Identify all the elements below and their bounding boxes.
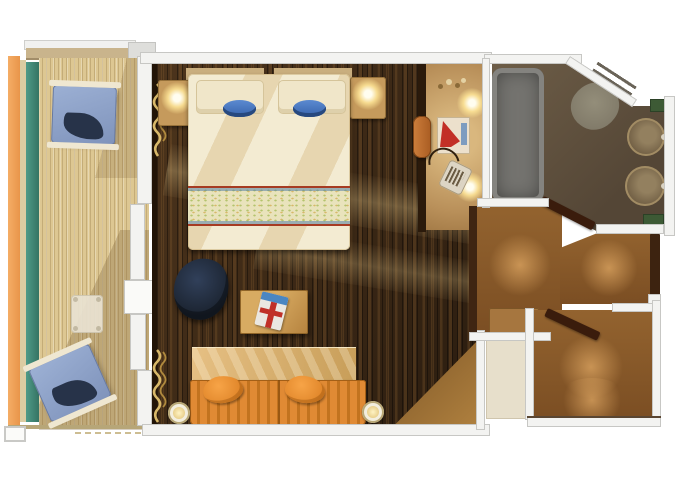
interior-wall (477, 198, 549, 207)
wall-sconce-icon (362, 401, 384, 423)
balcony-bottom-trim (8, 425, 149, 429)
closet-floor (486, 337, 530, 419)
lounge-cushion (63, 112, 105, 140)
interior-wall (525, 308, 534, 420)
interior-wall (482, 58, 490, 208)
lamp-glow-icon (352, 78, 384, 110)
sliding-door-wall (137, 56, 152, 204)
sliding-door-wall (130, 314, 146, 370)
balcony-corner-notch (4, 426, 26, 442)
bed-runner-band (188, 186, 350, 226)
lounge-cushion (50, 372, 99, 414)
balcony-railing (8, 56, 20, 426)
entry-door-icon (650, 234, 660, 296)
wall-sconce-icon (168, 402, 190, 424)
exterior-wall (664, 96, 675, 236)
sliding-door-threshold (124, 280, 153, 314)
ceiling-light-glow (578, 240, 640, 296)
exterior-wall (652, 300, 661, 422)
sink-icon (627, 118, 665, 156)
blue-bowl-icon (293, 100, 326, 117)
blue-bowl-icon (223, 100, 256, 117)
exterior-wall (142, 424, 490, 436)
interior-wall (596, 224, 664, 234)
ceiling-light-glow (489, 232, 551, 298)
curtain-icon (151, 348, 169, 424)
sliding-door-wall (130, 204, 145, 280)
sliding-door-wall (137, 370, 152, 426)
bathtub-icon (492, 68, 544, 202)
wardrobe-wall (469, 206, 477, 336)
exterior-wall (140, 52, 492, 64)
sink-icon (625, 166, 665, 206)
floorplan-canvas (0, 0, 680, 486)
side-table-icon (71, 295, 103, 333)
stool-icon (413, 116, 431, 158)
lounge-chair-icon (51, 85, 117, 145)
interior-wall (476, 330, 485, 430)
exterior-wall (527, 416, 661, 427)
interior-wall (469, 332, 551, 341)
